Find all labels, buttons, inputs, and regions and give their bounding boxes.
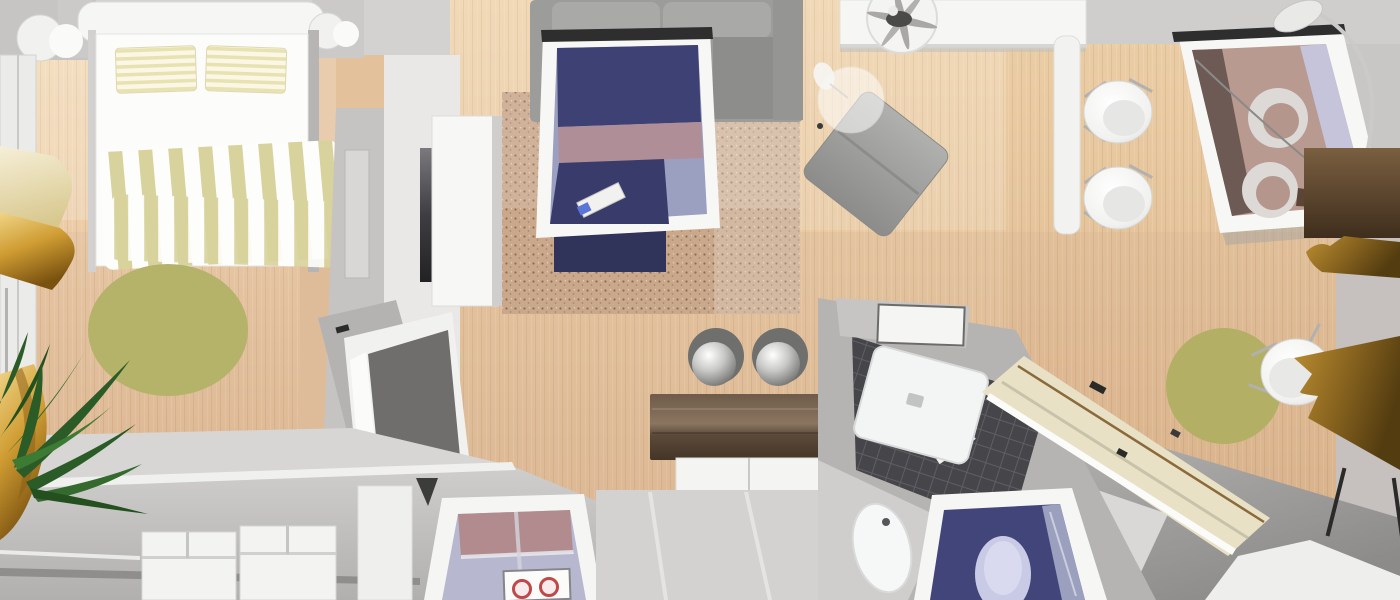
sofa-foot [817,123,823,129]
bath-cabinet-glass [877,305,964,346]
stove-burner-2 [541,579,558,596]
skylight1-pane-carpet-band [558,122,703,163]
bar-stool-1-seat [692,342,736,386]
dining-chair-2-seat [1103,186,1145,222]
wall-mirror[interactable] [345,150,369,278]
skylight2-chair-reflection-1-hole [1263,103,1299,139]
wall-desk-shadow [840,44,1086,52]
dining-chair-1-seat [1103,100,1145,136]
curtain-rod [5,288,8,386]
bar-counter[interactable] [650,394,824,460]
skylight1-pane-navy-top [557,45,701,127]
wall-lamp-left-inner [49,24,83,58]
kitchen-pillar [358,486,412,600]
bedroom-rug[interactable] [88,264,248,396]
drawer-unit-1-divider-v [186,532,189,558]
bar-cabinet-divider [748,458,750,492]
coffee-table[interactable] [554,230,666,272]
sofa-arm-right [773,0,803,120]
sofa-chaise [713,37,773,119]
bar-counter-streak-1 [652,408,822,410]
drawer-unit-2-divider-v [286,526,289,554]
toilet-lid [984,541,1022,595]
hall-bottom-floor [596,490,826,600]
tall-cabinet[interactable] [432,116,498,306]
bed-pillow-right[interactable] [205,46,287,94]
wall-lamp-right-inner [333,21,359,47]
dining-table-edge[interactable] [1054,36,1080,234]
washbasin-drain [882,518,890,526]
apartment-scene-canvas [0,0,1400,600]
skylight2-chair-reflection-2-hole [1256,176,1290,210]
brown-wardrobe[interactable] [1304,148,1400,238]
bar-stool-2-seat [756,342,800,386]
floorplan-3d-render [0,0,1400,600]
bed-blanket-fold [109,194,341,268]
stove-burner-1 [514,581,531,598]
bar-counter-streak-2 [652,432,822,434]
bed-pillow-left[interactable] [115,46,197,94]
bed-frame-left [88,30,96,272]
ceiling-fan-cap [888,6,898,16]
